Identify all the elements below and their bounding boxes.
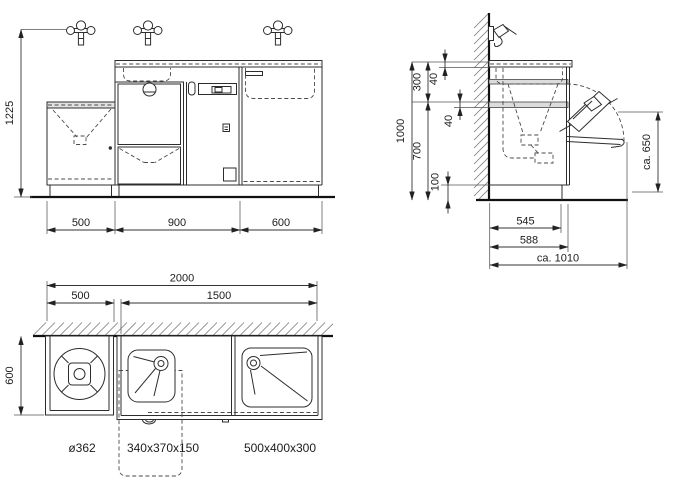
dim-40-rail: 40: [443, 115, 455, 127]
round-basin: [54, 349, 105, 400]
front-detail: [223, 420, 229, 423]
faucet-icon: [134, 21, 163, 45]
left-cabinet-plan: [46, 336, 114, 415]
dim-300: 300: [412, 73, 424, 91]
faucet-icon: [67, 21, 96, 45]
rail-lower: [489, 102, 568, 108]
dim-2000: 2000: [170, 273, 194, 285]
front-elevation-view: 1225 500 900 600: [4, 21, 335, 234]
side-elevation-view: 1000 300 700 40 40 100 ca. 650: [395, 13, 663, 269]
dim-700: 700: [412, 142, 424, 160]
dim-ca-650: ca. 650: [641, 134, 653, 170]
drain-hidden: [521, 135, 538, 145]
flap-edge-hook: [611, 139, 624, 148]
sink-unit-plan: [117, 336, 322, 476]
wall-hatch: [33, 323, 333, 336]
dim-1000: 1000: [395, 119, 407, 143]
wall-faucet-icon: [489, 25, 517, 47]
label-round-basin: ø362: [68, 441, 96, 455]
service-hatch: [224, 168, 237, 181]
dim-height-1225: 1225: [4, 101, 16, 125]
latch-detail: [223, 124, 230, 132]
dim-40-counter: 40: [428, 73, 440, 85]
left-cabinet-front: [47, 102, 115, 197]
wall-hatch: [474, 13, 489, 200]
dim-545: 545: [516, 216, 534, 228]
dim-width-500: 500: [72, 217, 90, 229]
dim-500: 500: [71, 290, 89, 302]
dim-100: 100: [430, 173, 442, 191]
deep-sink-hidden-outline: [246, 68, 315, 99]
rail-upper: [489, 80, 568, 85]
drawing-svg: 1225 500 900 600: [0, 0, 680, 496]
round-fitting: [143, 83, 156, 96]
dim-1500: 1500: [207, 290, 231, 302]
cabinet-section: [489, 61, 572, 201]
dim-588: 588: [520, 235, 538, 247]
faucet-icon: [264, 21, 293, 45]
dim-width-600: 600: [272, 217, 290, 229]
right-sink: [242, 348, 312, 407]
middle-sink: [128, 350, 175, 402]
label-middle-sink: 340x370x150: [127, 441, 199, 455]
plan-view: 2000 500 1500 600 ø362 340x370x150 500x4…: [4, 273, 333, 477]
technical-drawing-page: 1225 500 900 600: [0, 0, 680, 496]
tall-unit-front: [115, 61, 322, 197]
tilted-board: [568, 92, 611, 132]
dim-600: 600: [4, 366, 16, 384]
dim-ca-1010: ca. 1010: [537, 253, 579, 265]
upper-sink-hidden-outline: [124, 68, 171, 81]
door-knob: [109, 146, 112, 149]
door-handle: [246, 72, 263, 76]
dim-width-900: 900: [168, 217, 186, 229]
control-panel: [189, 82, 237, 95]
label-right-sink: 500x400x300: [244, 441, 316, 455]
